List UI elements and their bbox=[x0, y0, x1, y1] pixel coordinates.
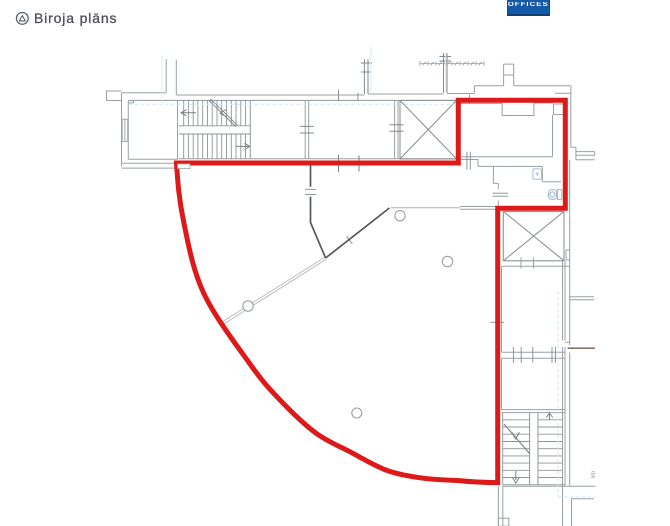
svg-text:a/p: a/p bbox=[591, 471, 597, 479]
